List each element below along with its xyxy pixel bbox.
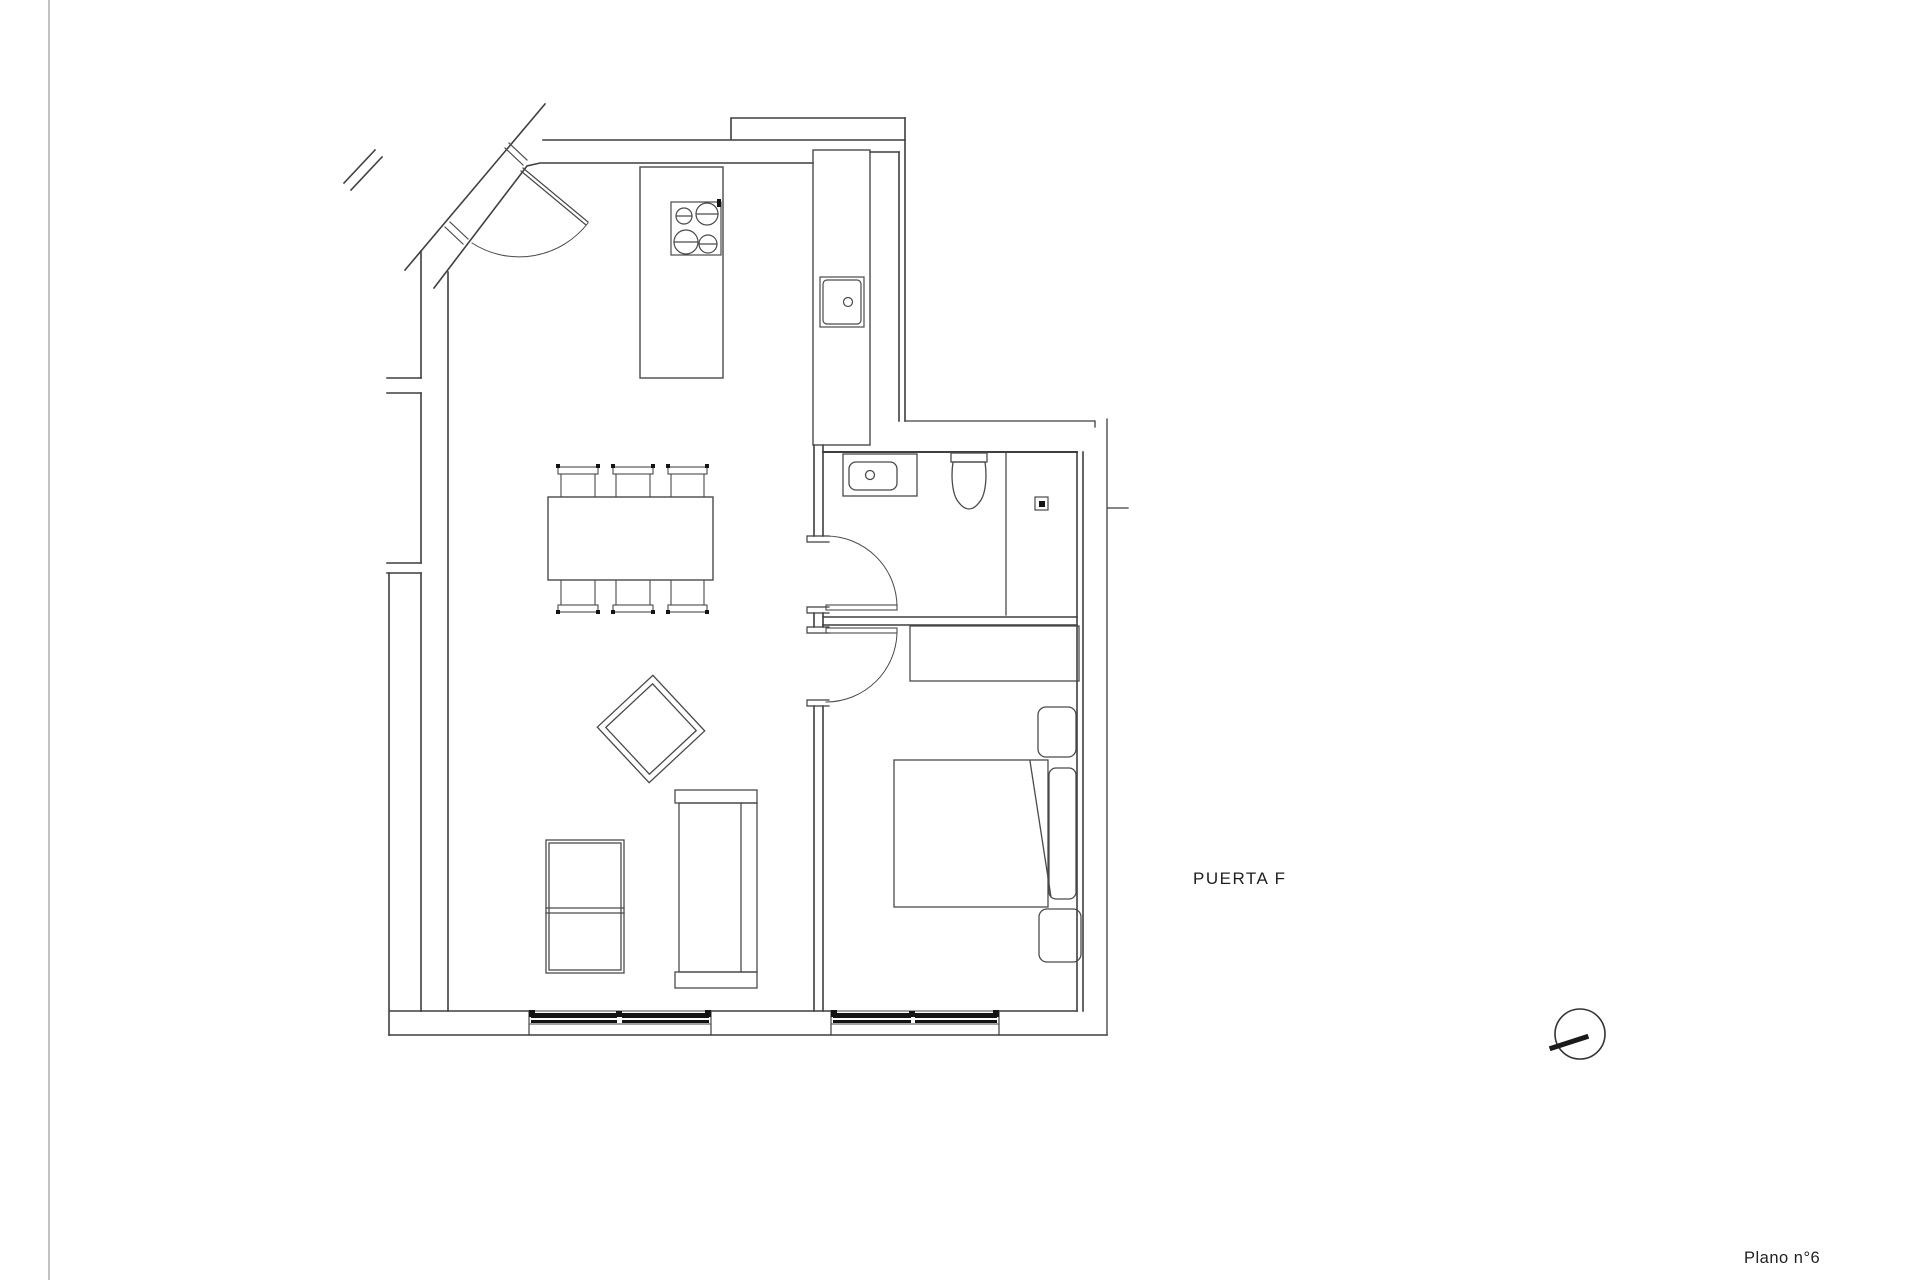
top-wall bbox=[543, 118, 905, 152]
nightstand bbox=[1039, 909, 1081, 962]
pillow bbox=[1049, 768, 1076, 899]
dividing-wall bbox=[823, 617, 1077, 625]
toilet bbox=[951, 453, 987, 509]
entrance-door bbox=[445, 143, 588, 257]
dining-chairs-bottom bbox=[556, 580, 709, 614]
right-wall bbox=[1077, 452, 1083, 1011]
dining-chair bbox=[611, 580, 655, 614]
bathroom-door bbox=[826, 536, 897, 610]
dining-table bbox=[548, 497, 713, 580]
sofa bbox=[675, 790, 757, 988]
basin-drain-icon bbox=[866, 471, 875, 480]
wardrobe bbox=[910, 626, 1079, 681]
cooktop-knob-mark bbox=[717, 199, 721, 207]
dining-area bbox=[548, 464, 713, 614]
living-room-window bbox=[529, 1010, 711, 1024]
bathroom-vanity bbox=[843, 454, 917, 496]
bathroom-door-swing-arc bbox=[826, 536, 897, 607]
north-indicator-icon bbox=[1552, 1009, 1605, 1059]
dining-chair bbox=[611, 464, 655, 497]
entrance-wall-inner bbox=[434, 163, 813, 288]
left-neighbor-line bbox=[389, 573, 421, 1035]
nightstand bbox=[1038, 707, 1076, 757]
puerta-f-label: PUERTA F bbox=[1193, 869, 1287, 889]
shower-drain-icon bbox=[1035, 497, 1048, 510]
armchair bbox=[597, 675, 704, 782]
tv-cabinet bbox=[546, 840, 624, 973]
terrace-ledge bbox=[905, 421, 1095, 427]
kitchen-right-wall bbox=[899, 118, 905, 421]
neighbor-wall-stub bbox=[344, 150, 382, 190]
walls bbox=[344, 104, 1128, 1035]
outer-right-wall bbox=[1107, 419, 1128, 1035]
left-wall-junction-stubs bbox=[387, 378, 421, 573]
bathroom bbox=[826, 453, 1048, 615]
entrance-jamb-ticks bbox=[445, 143, 527, 244]
drawing-sheet: PUERTA F Plano n°6 bbox=[0, 0, 1920, 1280]
door-jambs bbox=[807, 536, 829, 706]
bedroom-window bbox=[831, 1010, 999, 1024]
bedroom bbox=[826, 626, 1081, 962]
floor-plan-svg bbox=[0, 0, 1920, 1280]
dining-chairs-top bbox=[556, 464, 709, 497]
cooktop bbox=[671, 199, 721, 255]
entrance-door-leaf bbox=[521, 168, 588, 225]
dining-chair bbox=[666, 580, 709, 614]
kitchen bbox=[640, 150, 870, 445]
living-room bbox=[546, 675, 757, 988]
kitchen-island bbox=[640, 167, 723, 378]
sink-drain-icon bbox=[844, 298, 853, 307]
plano-sheet-label: Plano n°6 bbox=[1744, 1249, 1820, 1268]
burner-marks bbox=[674, 214, 718, 244]
dining-chair bbox=[666, 464, 709, 497]
kitchen-sink bbox=[820, 277, 864, 327]
dining-chair bbox=[556, 580, 600, 614]
bedroom-door bbox=[826, 628, 897, 702]
dining-chair bbox=[556, 464, 600, 497]
bedroom-door-swing-arc bbox=[826, 631, 897, 702]
entrance-door-swing-arc bbox=[472, 223, 588, 257]
bed bbox=[894, 760, 1076, 907]
